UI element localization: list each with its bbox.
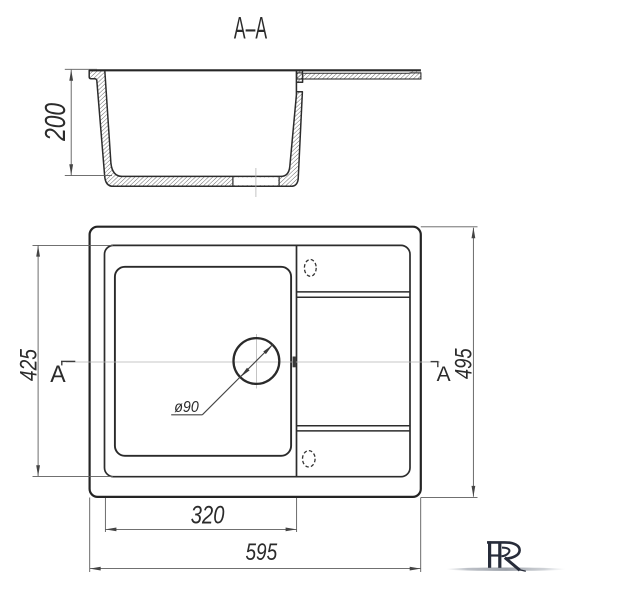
svg-text:A: A <box>437 362 452 386</box>
svg-text:595: 595 <box>245 539 277 566</box>
svg-text:A: A <box>50 361 65 388</box>
svg-text:425: 425 <box>16 349 43 381</box>
svg-text:A–A: A–A <box>234 9 267 45</box>
svg-text:ø90: ø90 <box>174 399 199 416</box>
svg-text:200: 200 <box>40 103 72 142</box>
svg-text:320: 320 <box>191 503 225 530</box>
svg-text:495: 495 <box>450 348 477 379</box>
